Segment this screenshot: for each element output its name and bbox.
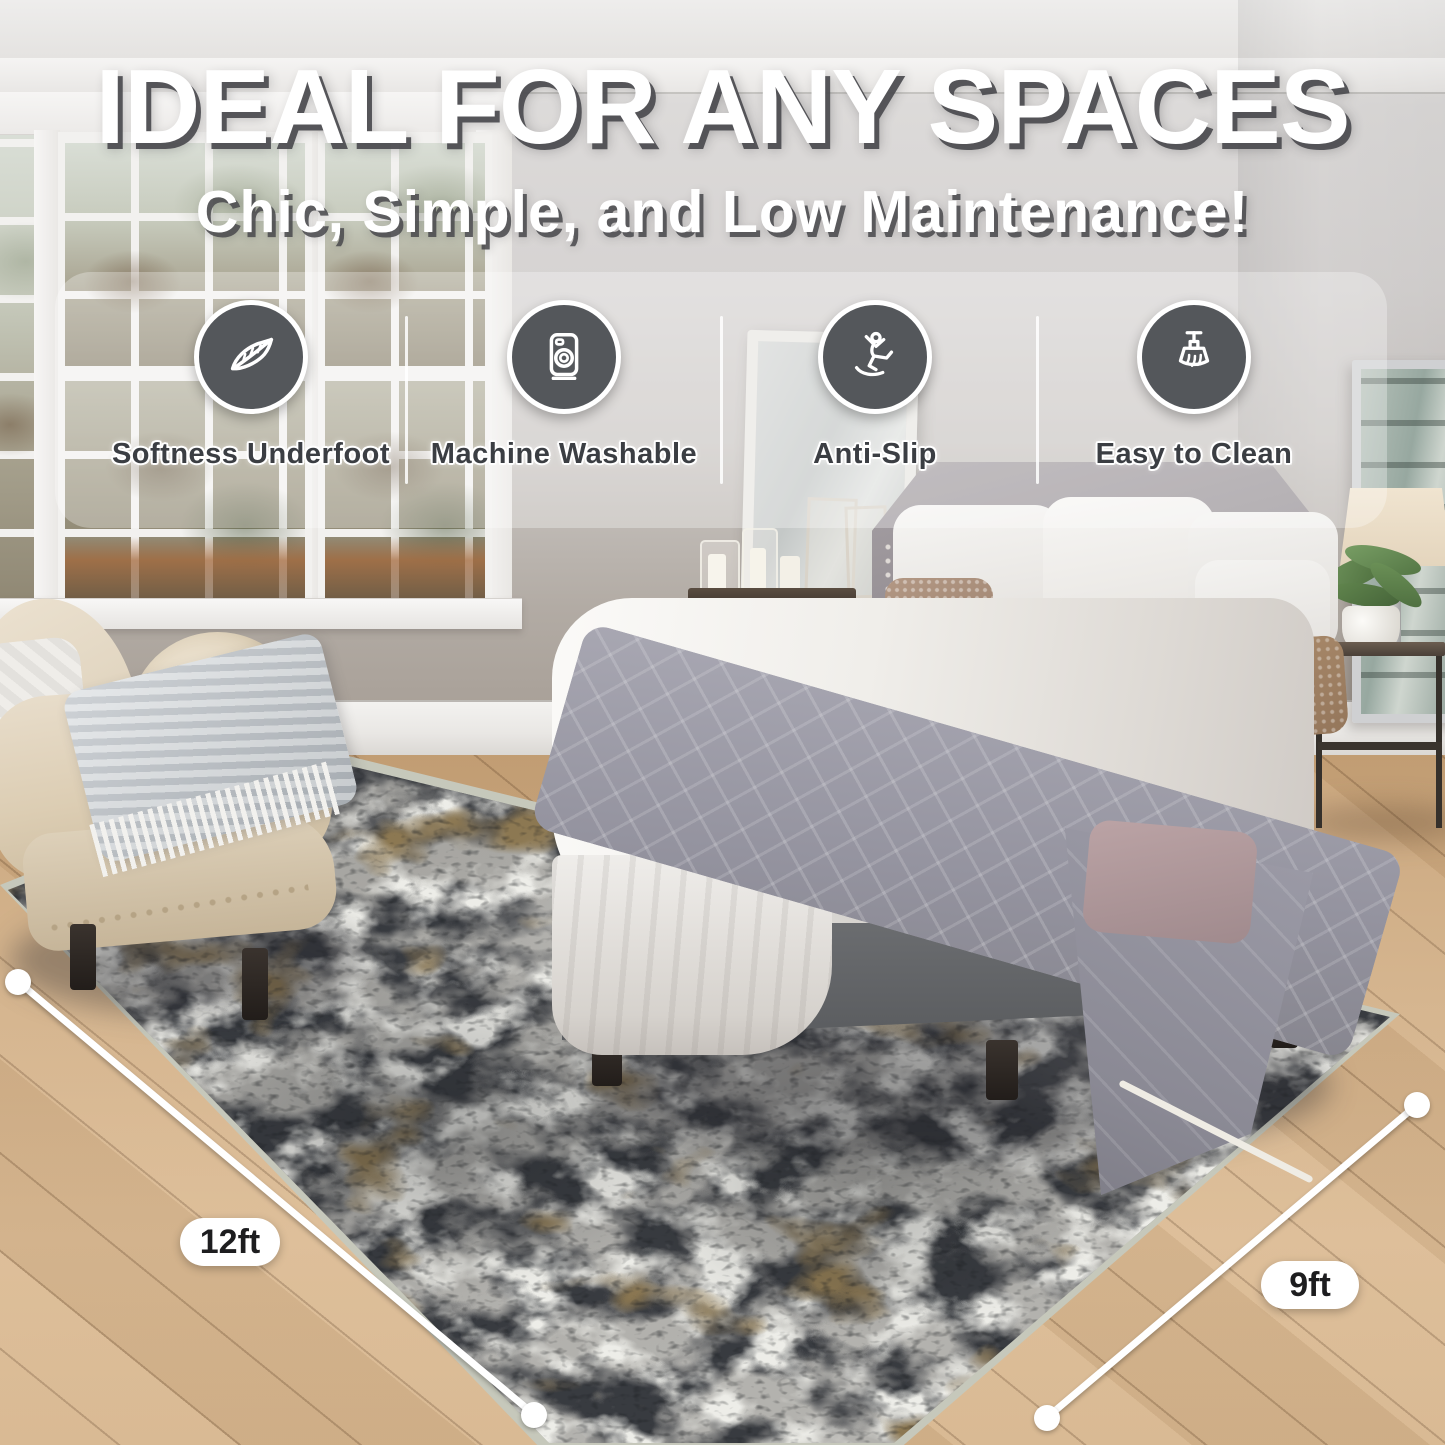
- mauve-throw: [1081, 819, 1258, 945]
- chaise-leg: [70, 924, 96, 990]
- dimension-endpoint-dot: [1034, 1405, 1060, 1431]
- feature-circle: [818, 300, 932, 414]
- length-label-pill: 12ft: [180, 1218, 280, 1266]
- feature-divider: [1036, 316, 1039, 484]
- feature-label: Easy to Clean: [1044, 438, 1344, 471]
- anti-slip-icon: [844, 326, 906, 388]
- width-label-pill: 9ft: [1261, 1261, 1359, 1309]
- feature-divider: [720, 316, 723, 484]
- length-value: 12ft: [200, 1223, 260, 1262]
- feature-divider: [405, 316, 408, 484]
- feature-label: Anti-Slip: [725, 438, 1025, 471]
- feature-antislip: Anti-Slip: [725, 300, 1025, 471]
- feature-label: Machine Washable: [414, 438, 714, 471]
- feature-easyclean: Easy to Clean: [1044, 300, 1344, 471]
- feature-label: Softness Underfoot: [101, 438, 401, 471]
- dimension-endpoint-dot: [5, 969, 31, 995]
- feature-circle: [1137, 300, 1251, 414]
- feature-circle: [194, 300, 308, 414]
- page-title: IDEAL FOR ANY SPACES: [0, 52, 1445, 162]
- dimension-endpoint-dot: [1404, 1092, 1430, 1118]
- rug-product-image: 12ft 9ft Softness Underfoot Mach: [0, 0, 1445, 1445]
- page-subtitle: Chic, Simple, and Low Maintenance!: [0, 178, 1445, 246]
- feature-washable: Machine Washable: [414, 300, 714, 471]
- feature-circle: [507, 300, 621, 414]
- side-table-shelf: [1318, 742, 1442, 750]
- pillar-candle: [708, 554, 726, 592]
- feather-icon: [220, 326, 282, 388]
- pillar-candle: [780, 556, 800, 592]
- bed-leg: [986, 1040, 1018, 1100]
- pillar-candle: [750, 548, 766, 590]
- feature-softness: Softness Underfoot: [101, 300, 401, 471]
- width-value: 9ft: [1289, 1266, 1331, 1305]
- cleaning-brush-icon: [1163, 326, 1225, 388]
- chaise-leg: [242, 948, 268, 1020]
- washing-machine-icon: [533, 326, 595, 388]
- dimension-endpoint-dot: [521, 1402, 547, 1428]
